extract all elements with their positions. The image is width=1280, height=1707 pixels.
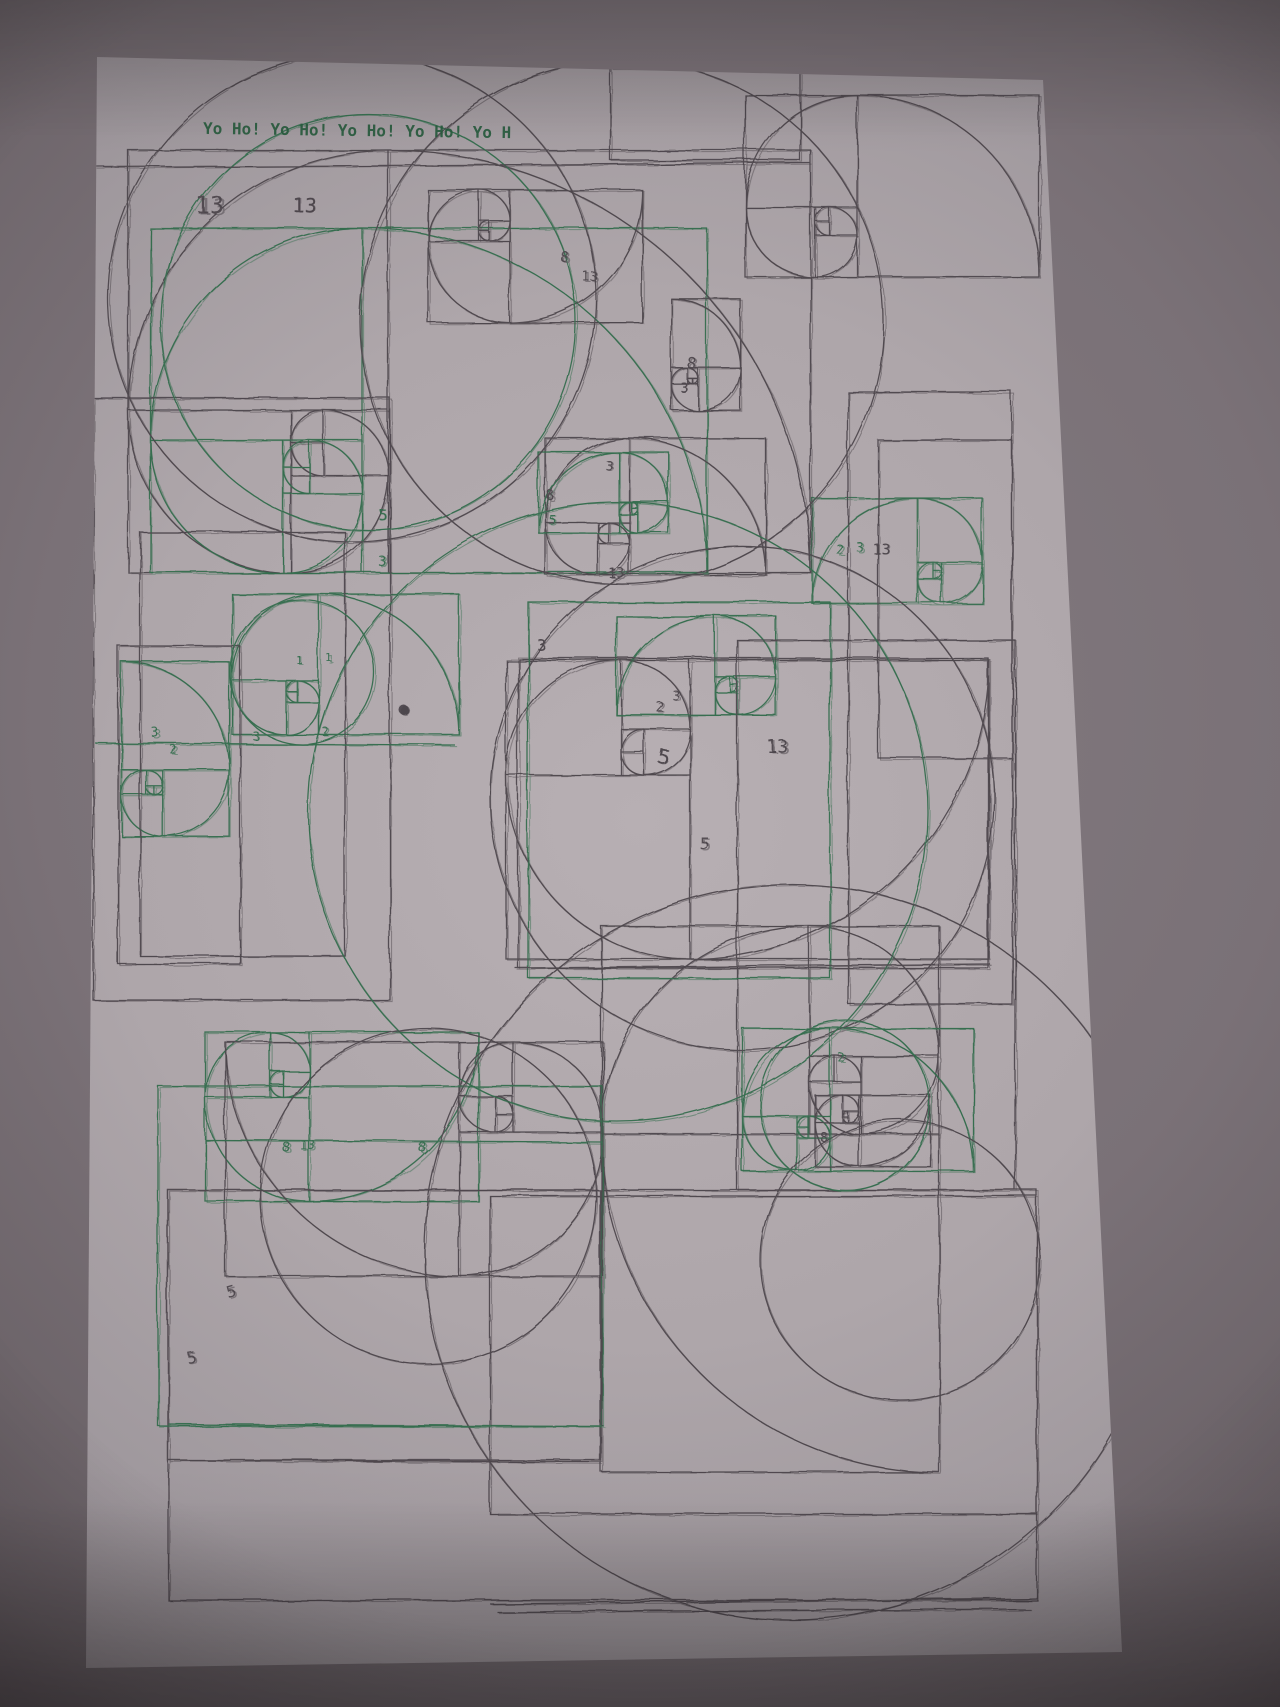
number-label: 5 (380, 507, 389, 525)
number-label: 13 (302, 1140, 318, 1155)
number-label: 13 (294, 194, 318, 218)
fib-unit (205, 1032, 478, 1201)
construction-rect (518, 658, 988, 968)
number-label: 8 (562, 249, 571, 267)
fib-unit (207, 1033, 480, 1202)
construction-rect (878, 440, 1012, 758)
ink-pass-2: 1313813835385313323132351351123328138552… (95, 55, 1162, 1621)
construction-rect (520, 659, 990, 969)
number-label: 2 (172, 744, 179, 758)
number-label: 2 (658, 701, 666, 717)
ink-pass-1: 1313813835385313323132351351123328138552… (93, 54, 1160, 1620)
construction-circle (760, 1120, 1040, 1400)
construction-rect (490, 1196, 1037, 1514)
number-label: 13 (768, 737, 790, 758)
construction-rect (880, 441, 1014, 759)
photo-scene: 1313813835385313323132351351123328138552… (0, 0, 1280, 1707)
number-label: 5 (187, 1349, 200, 1369)
ink-dot (401, 706, 411, 716)
number-label: 8 (284, 1141, 292, 1157)
fib-unit (428, 190, 642, 323)
number-label: 3 (154, 728, 162, 743)
number-label: 3 (254, 730, 261, 744)
number-label: 5 (702, 836, 712, 856)
number-label: 13 (198, 193, 227, 221)
paper-sheet: 1313813835385313323132351351123328138552… (0, 0, 1280, 1707)
number-label: 13 (584, 271, 600, 286)
fib-unit (603, 927, 941, 1473)
number-label: 3 (538, 636, 548, 655)
construction-rect (120, 647, 242, 965)
construction-circle (424, 884, 1160, 1620)
number-label: 8 (420, 1141, 428, 1157)
number-label: 3 (682, 382, 690, 397)
number-label: 2 (840, 1052, 847, 1066)
number-label: 3 (380, 555, 388, 571)
number-label: 3 (607, 460, 615, 475)
number-label: 8 (822, 1132, 830, 1147)
fib-unit (538, 452, 668, 533)
number-label: 13 (874, 541, 892, 559)
number-label: 1 (298, 655, 305, 668)
fib-unit (430, 191, 644, 324)
number-label: 2 (838, 544, 846, 559)
fib-unit (745, 95, 1039, 277)
plotter-drawing: 1313813835385313323132351351123328138552… (0, 0, 1280, 1707)
number-label: 1 (328, 653, 335, 666)
number-label: 5 (550, 514, 558, 529)
number-label: 3 (674, 690, 682, 705)
construction-rect (492, 1197, 1039, 1515)
fib-unit (547, 439, 768, 575)
fib-unit (601, 926, 939, 1472)
construction-circle (490, 546, 994, 1050)
number-label: 2 (324, 726, 331, 740)
construction-rect (610, 68, 800, 160)
fib-unit (506, 660, 989, 959)
fib-unit (508, 661, 991, 960)
fib-unit (618, 617, 778, 716)
number-label: 3 (858, 542, 866, 557)
fib-unit (616, 616, 776, 715)
fib-unit (747, 96, 1041, 278)
number-label: 13 (610, 567, 627, 583)
construction-rect (612, 69, 802, 161)
number-label: 8 (548, 489, 556, 505)
